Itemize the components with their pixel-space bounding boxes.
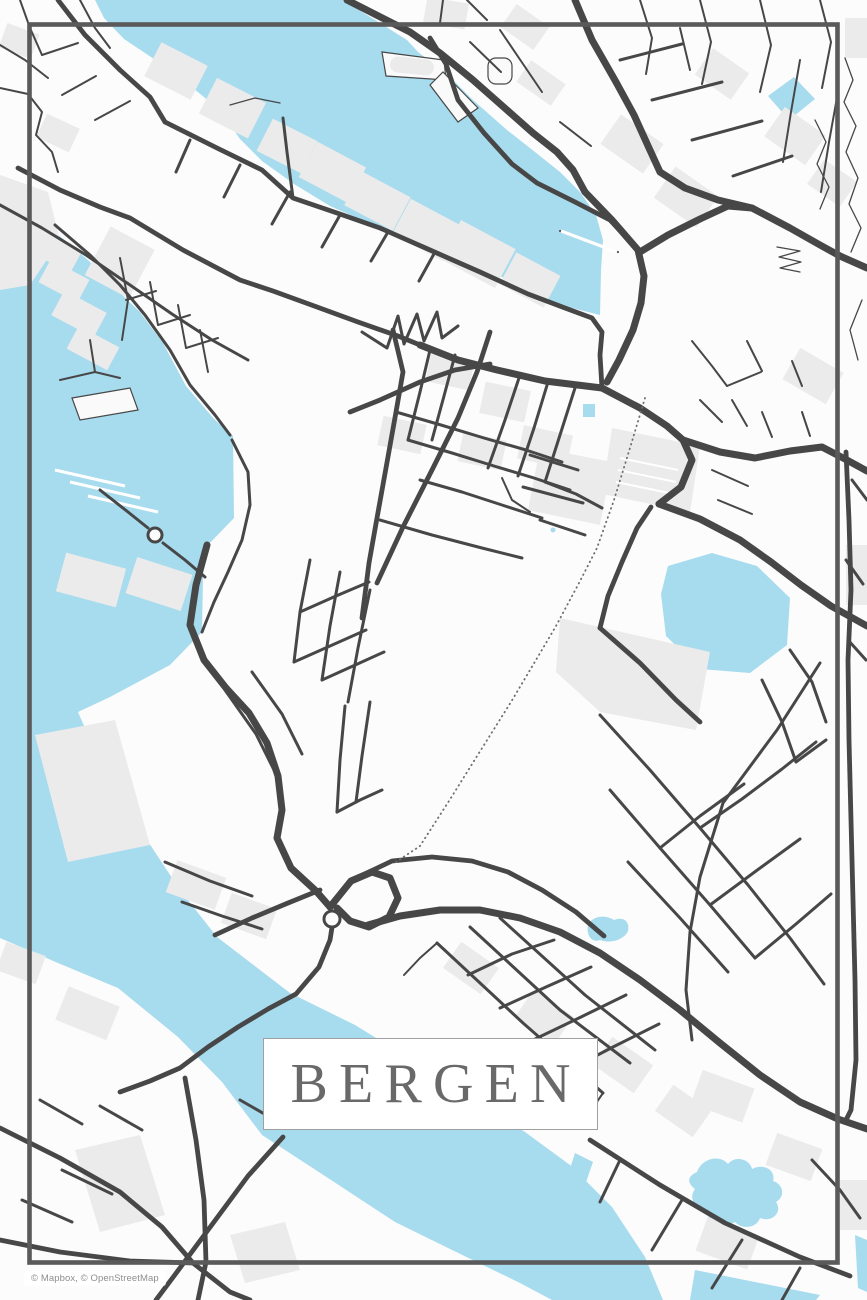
attribution[interactable]: © Mapbox, © OpenStreetMap <box>24 1271 166 1286</box>
water-pond-small <box>583 404 595 417</box>
map-title: BERGEN <box>279 1052 581 1116</box>
map-poster: BERGEN © Mapbox, © OpenStreetMap <box>0 0 867 1300</box>
attribution-text[interactable]: © Mapbox, © OpenStreetMap <box>31 1273 159 1284</box>
water-pond-dot <box>551 528 556 533</box>
map-title-card: BERGEN <box>263 1038 598 1130</box>
